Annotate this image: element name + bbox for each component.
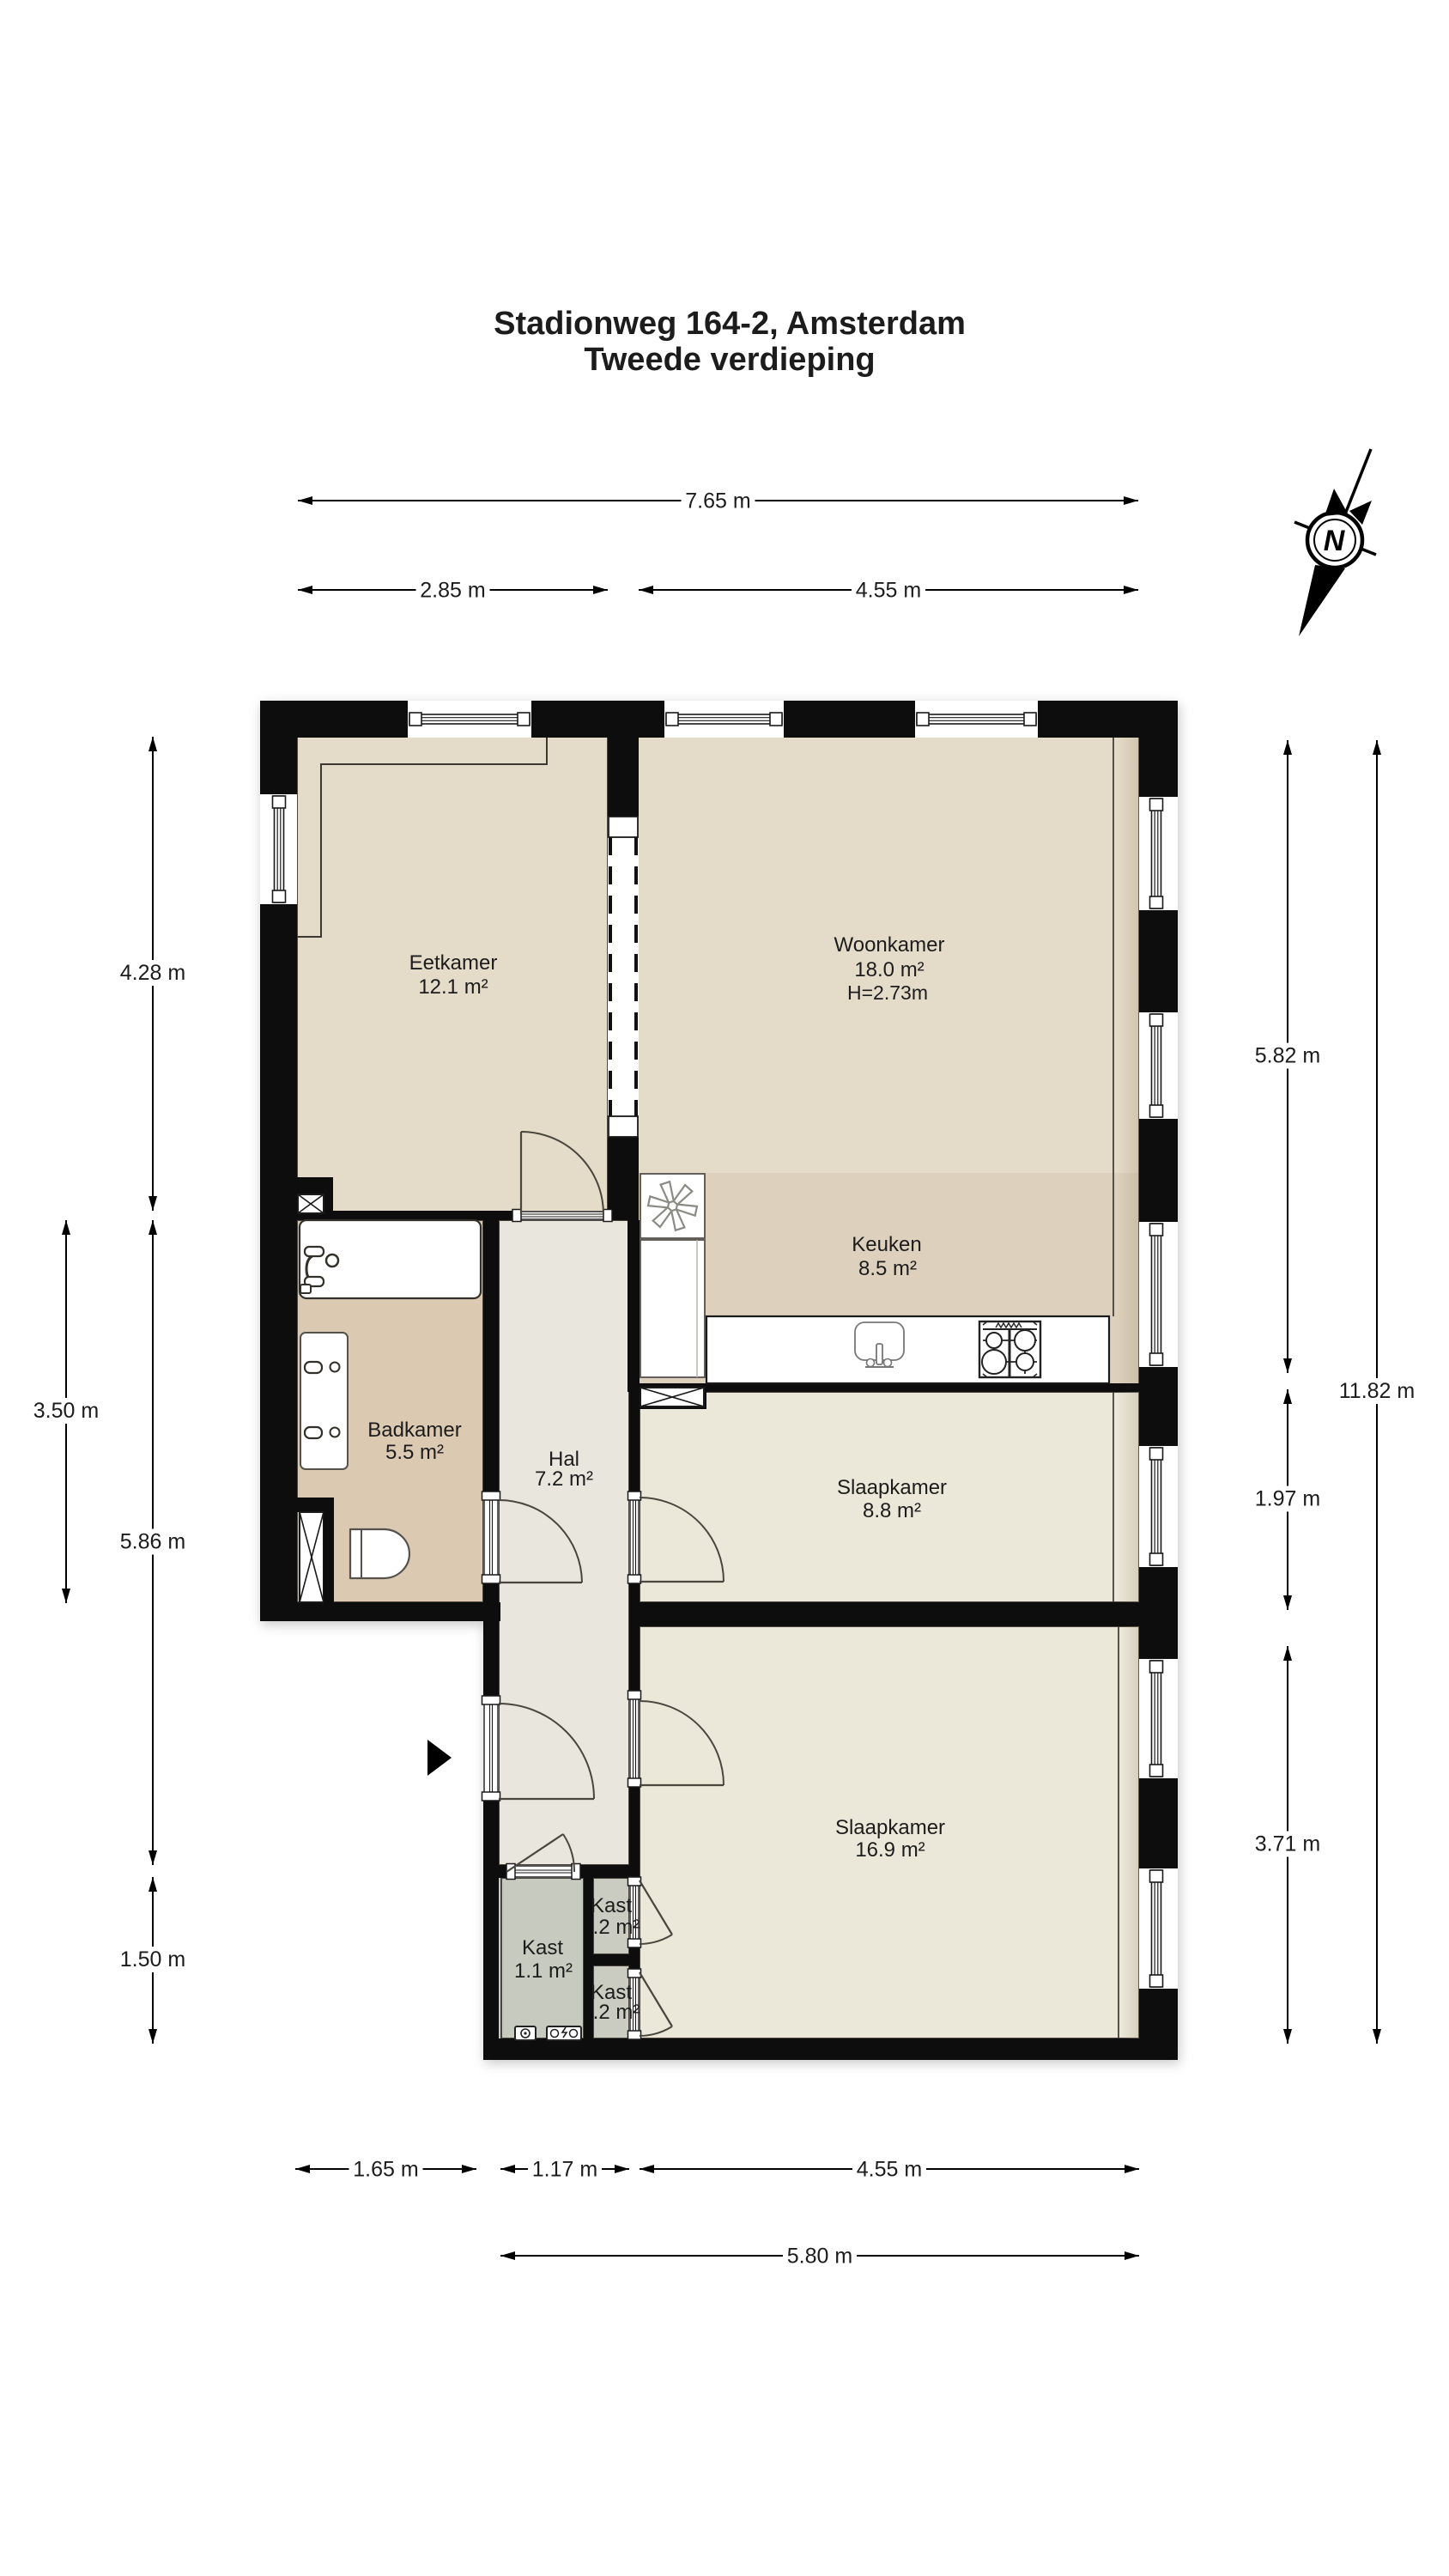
svg-text:1.50 m: 1.50 m <box>120 1947 185 1971</box>
svg-text:Eetkamer: Eetkamer <box>409 951 498 975</box>
svg-text:1.97 m: 1.97 m <box>1255 1487 1320 1511</box>
svg-text:2.85 m: 2.85 m <box>420 579 485 603</box>
svg-text:N: N <box>1324 525 1346 557</box>
svg-text:Keuken: Keuken <box>852 1233 921 1256</box>
svg-text:.2 m²: .2 m² <box>593 1916 640 1939</box>
svg-text:7.2 m²: 7.2 m² <box>535 1467 593 1491</box>
svg-text:Woonkamer: Woonkamer <box>834 933 945 957</box>
svg-text:5.82 m: 5.82 m <box>1255 1044 1320 1068</box>
svg-text:4.55 m: 4.55 m <box>856 579 921 603</box>
svg-text:.2 m²: .2 m² <box>593 2001 640 2024</box>
svg-text:8.8 m²: 8.8 m² <box>863 1499 921 1522</box>
svg-text:12.1 m²: 12.1 m² <box>418 975 488 999</box>
svg-text:4.28 m: 4.28 m <box>120 961 185 985</box>
svg-text:1.1 m²: 1.1 m² <box>514 1959 573 1983</box>
svg-text:3.50 m: 3.50 m <box>33 1399 99 1423</box>
svg-text:5.86 m: 5.86 m <box>120 1530 185 1554</box>
svg-text:7.65 m: 7.65 m <box>685 489 750 513</box>
svg-text:Slaapkamer: Slaapkamer <box>835 1816 945 1839</box>
svg-text:1.65 m: 1.65 m <box>353 2158 418 2182</box>
svg-text:11.82 m: 11.82 m <box>1339 1379 1415 1403</box>
svg-text:18.0 m²: 18.0 m² <box>854 958 924 981</box>
svg-text:16.9 m²: 16.9 m² <box>855 1838 925 1862</box>
svg-text:Kast: Kast <box>522 1936 563 1959</box>
svg-text:5.80 m: 5.80 m <box>787 2245 852 2269</box>
svg-text:H=2.73m: H=2.73m <box>847 981 928 1004</box>
svg-text:4.55 m: 4.55 m <box>857 2158 922 2182</box>
svg-text:3.71 m: 3.71 m <box>1255 1832 1320 1856</box>
svg-text:1.17 m: 1.17 m <box>532 2158 597 2182</box>
svg-text:Kast: Kast <box>591 1894 632 1917</box>
svg-text:Slaapkamer: Slaapkamer <box>837 1476 947 1499</box>
svg-text:Stadionweg 164-2, Amsterdam: Stadionweg 164-2, Amsterdam <box>494 306 966 342</box>
svg-text:Badkamer: Badkamer <box>367 1419 461 1442</box>
svg-text:Tweede verdieping: Tweede verdieping <box>584 342 875 378</box>
svg-text:5.5 m²: 5.5 m² <box>385 1441 444 1464</box>
svg-text:8.5 m²: 8.5 m² <box>858 1257 917 1280</box>
